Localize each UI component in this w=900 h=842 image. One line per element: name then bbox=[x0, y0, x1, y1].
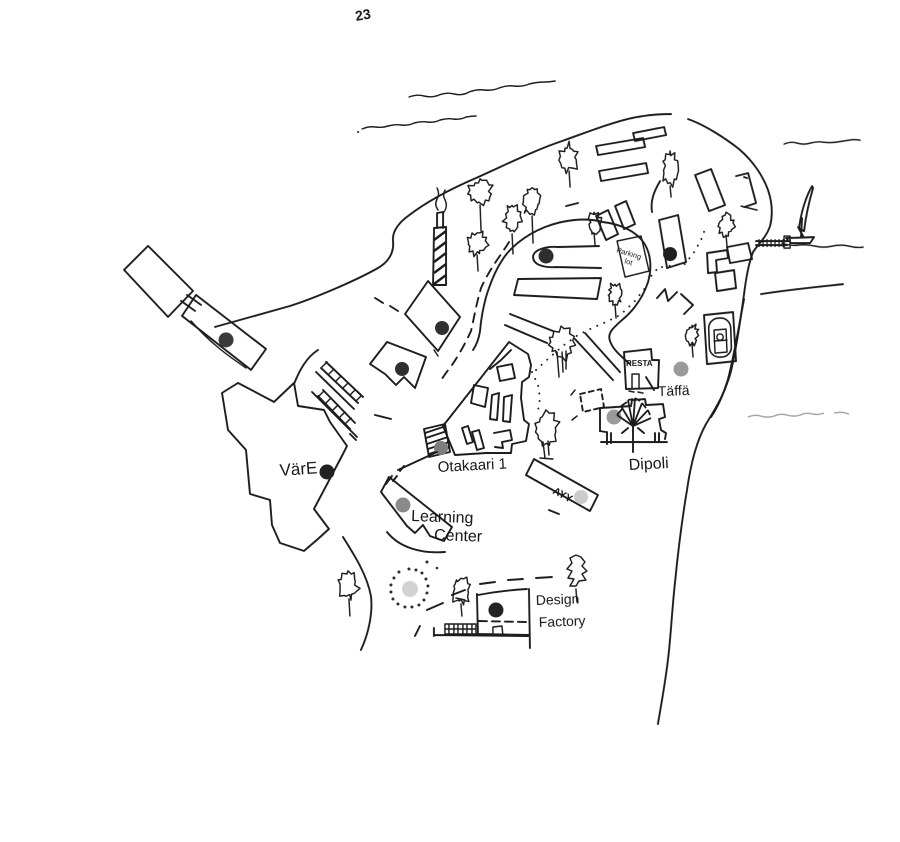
svg-text:VärE: VärE bbox=[279, 458, 318, 480]
svg-text:Design: Design bbox=[535, 591, 579, 608]
svg-text:Dipoli: Dipoli bbox=[628, 455, 669, 474]
svg-text:Learning: Learning bbox=[411, 508, 474, 527]
svg-text:Otakaari 1: Otakaari 1 bbox=[437, 455, 507, 476]
svg-text:RESTA: RESTA bbox=[626, 359, 653, 368]
svg-text:Täffä: Täffä bbox=[658, 382, 690, 399]
svg-text:23: 23 bbox=[354, 5, 372, 23]
svg-text:Factory: Factory bbox=[538, 612, 585, 630]
svg-text:Center: Center bbox=[434, 527, 483, 546]
